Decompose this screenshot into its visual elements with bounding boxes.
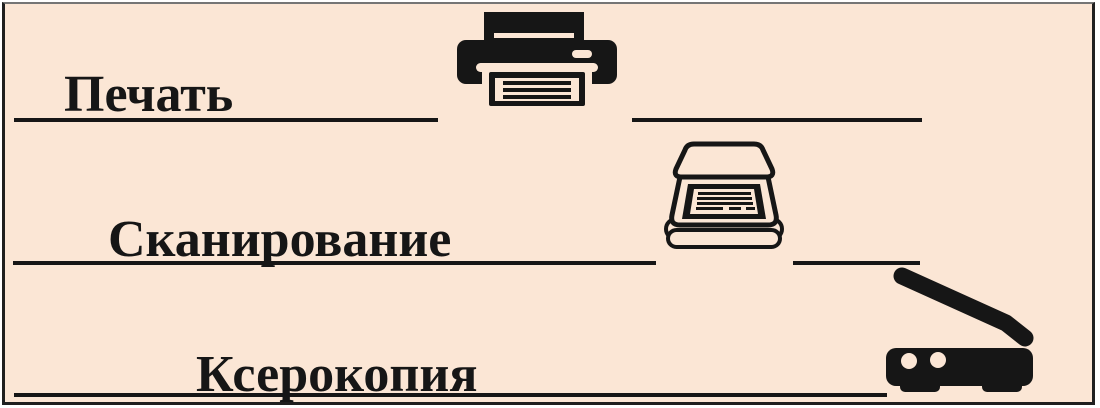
service-label-scan: Сканирование [108, 214, 451, 266]
copier-icon [878, 266, 1038, 396]
services-poster: Печать Сканирование Ксерокоп [0, 0, 1100, 408]
service-label-copy: Ксерокопия [196, 349, 477, 401]
blank-underline [793, 261, 920, 265]
printer-icon [454, 6, 620, 110]
service-label-print: Печать [64, 69, 233, 121]
blank-underline [632, 118, 922, 122]
scanner-icon [663, 141, 785, 253]
